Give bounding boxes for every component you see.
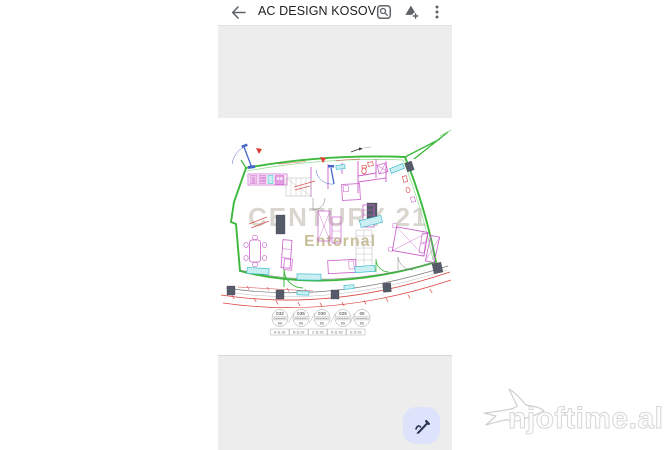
drive-viewer-window: AC DESIGN KOSOV...	[218, 0, 452, 450]
add-to-drive-icon	[403, 4, 419, 20]
legend-label: E-11-02	[350, 330, 362, 334]
viewer-background-bottom	[218, 355, 452, 450]
badge-sub: BB	[341, 322, 346, 326]
find-in-page-icon	[376, 4, 392, 20]
legend-label: C-11-02	[312, 330, 324, 334]
stylus-pen-icon	[412, 416, 432, 436]
badge-sub: BB	[320, 322, 325, 326]
viewer-background-top	[218, 25, 452, 118]
badge-value: 030	[318, 311, 326, 316]
site-watermark: njoftime.al	[480, 383, 670, 448]
find-in-page-button[interactable]	[376, 4, 392, 20]
annotation-arrow	[351, 147, 371, 152]
legend-badges: 032 035 030 025 00 BB BB BB BB BB	[272, 310, 370, 327]
legend-label: A-11-02	[274, 330, 286, 334]
more-vert-icon	[429, 4, 445, 20]
badge-sub: BB	[299, 322, 304, 326]
badge-sub: BB	[278, 322, 283, 326]
add-to-drive-button[interactable]	[403, 4, 419, 20]
site-watermark-text: njoftime.al	[508, 402, 664, 435]
badge-value: 035	[297, 311, 305, 316]
arrow-left-icon	[230, 4, 247, 21]
overflow-menu-button[interactable]	[429, 4, 445, 20]
screen: AC DESIGN KOSOV...	[0, 0, 670, 450]
badge-value: 032	[276, 311, 284, 316]
agency-watermark: Enternal	[304, 233, 376, 250]
floorplan-drawing: CENTURY 21 Enternal	[218, 118, 452, 355]
legend-labels: A-11-02 B-11-02 C-11-02 D-11-02 E-11-02	[271, 329, 366, 335]
legend-label: D-11-02	[331, 330, 343, 334]
document-title: AC DESIGN KOSOV...	[258, 4, 376, 18]
living-furniture	[244, 235, 293, 270]
back-button[interactable]	[230, 4, 247, 21]
annotate-fab-button[interactable]	[403, 407, 440, 444]
badge-value: 025	[339, 311, 347, 316]
legend: 032 035 030 025 00 BB BB BB BB BB	[271, 310, 371, 336]
badge-sub: BB	[360, 322, 365, 326]
document-page[interactable]: CENTURY 21 Enternal	[218, 118, 452, 355]
legend-label: B-11-02	[293, 330, 305, 334]
badge-value: 00	[359, 311, 365, 316]
app-toolbar: AC DESIGN KOSOV...	[218, 0, 452, 25]
